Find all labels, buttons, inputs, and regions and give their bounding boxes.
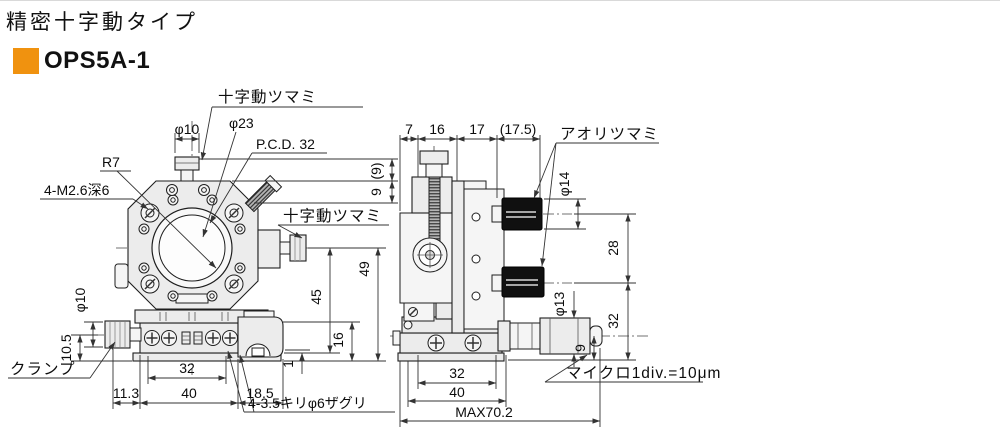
micrometer-ratchet bbox=[590, 326, 602, 346]
dim-aperture-dia: φ23 bbox=[229, 115, 254, 131]
side-knob-mount bbox=[258, 230, 280, 268]
dim-max70-2: MAX70.2 bbox=[455, 404, 513, 420]
tilt-knob-lower bbox=[502, 267, 544, 297]
side-view: 7 16 17 (17.5) アオリツマミ φ14 28 32 φ13 9 32… bbox=[390, 121, 721, 427]
catalog-page: 精密十字動タイプ OPS5A-1 bbox=[0, 0, 1000, 438]
dim-phi13: φ13 bbox=[551, 291, 567, 316]
dim-40-front: 40 bbox=[181, 385, 197, 401]
dim-17: 17 bbox=[469, 121, 485, 137]
top-knob-cap bbox=[175, 157, 199, 170]
micrometer-barrel bbox=[510, 323, 540, 349]
dim-28: 28 bbox=[605, 240, 621, 256]
side-base-rail bbox=[400, 333, 502, 353]
label-clamp: クランプ bbox=[10, 360, 76, 378]
dim-40-bottom: 40 bbox=[449, 384, 465, 400]
dim-32-right: 32 bbox=[605, 313, 621, 329]
label-counterbore: 4-3.5キリφ6ザグリ bbox=[248, 395, 367, 411]
threaded-rod bbox=[429, 177, 440, 247]
dim-16: 16 bbox=[330, 332, 346, 348]
stage-plate-a bbox=[452, 181, 464, 333]
top-knob-neck bbox=[181, 170, 193, 181]
front-view: φ10 十字動ツマミ φ23 P.C.D. 32 R7 4-M2.6深6 十字動… bbox=[8, 88, 398, 412]
dim-corner-radius: R7 bbox=[102, 154, 120, 170]
front-body bbox=[105, 157, 306, 361]
side-boss bbox=[115, 264, 128, 288]
side-bottom-plate bbox=[398, 353, 504, 361]
dim-7: 7 bbox=[405, 121, 413, 137]
label-corner-screws: 4-M2.6深6 bbox=[44, 182, 110, 198]
dim-32-bottom: 32 bbox=[449, 365, 465, 381]
side-knob-stem bbox=[280, 242, 290, 254]
dim-11-3: 11.3 bbox=[113, 385, 139, 401]
dim-1: 1 bbox=[280, 360, 296, 368]
dim-16-top: 16 bbox=[429, 121, 445, 137]
label-top-knob: 十字動ツマミ bbox=[218, 88, 317, 106]
dim-10-5: 10.5 bbox=[58, 334, 74, 361]
side-top-knob-cap bbox=[420, 151, 448, 164]
dim-top-knob-dia: φ10 bbox=[175, 121, 200, 137]
clamp-knob bbox=[105, 321, 130, 348]
dim-49: 49 bbox=[356, 261, 372, 277]
dim-32-front: 32 bbox=[179, 360, 195, 376]
dim-phi14: φ14 bbox=[556, 171, 572, 196]
dim-9-paren: (9) bbox=[368, 162, 384, 179]
label-micrometer: マイクロ1div.=10μm bbox=[566, 364, 721, 382]
dim-45: 45 bbox=[308, 289, 324, 305]
dim-9-right: 9 bbox=[572, 344, 588, 352]
label-tilt-knob: アオリツマミ bbox=[560, 126, 659, 143]
technical-drawing: φ10 十字動ツマミ φ23 P.C.D. 32 R7 4-M2.6深6 十字動… bbox=[0, 1, 1000, 438]
clamp-stem bbox=[130, 328, 141, 341]
dim-9: 9 bbox=[368, 188, 384, 196]
side-knob-cap bbox=[290, 235, 306, 261]
label-side-knob: 十字動ツマミ bbox=[283, 207, 382, 225]
micrometer-collar bbox=[498, 321, 510, 351]
dim-pcd: P.C.D. 32 bbox=[256, 136, 315, 152]
aperture-tab bbox=[176, 294, 208, 303]
side-top-knob-neck bbox=[426, 164, 442, 177]
aperture-inner bbox=[159, 215, 225, 281]
tilt-knob-upper bbox=[502, 198, 542, 230]
dim-17-5-paren: (17.5) bbox=[500, 121, 537, 137]
dim-clamp-dia: φ10 bbox=[72, 287, 88, 312]
